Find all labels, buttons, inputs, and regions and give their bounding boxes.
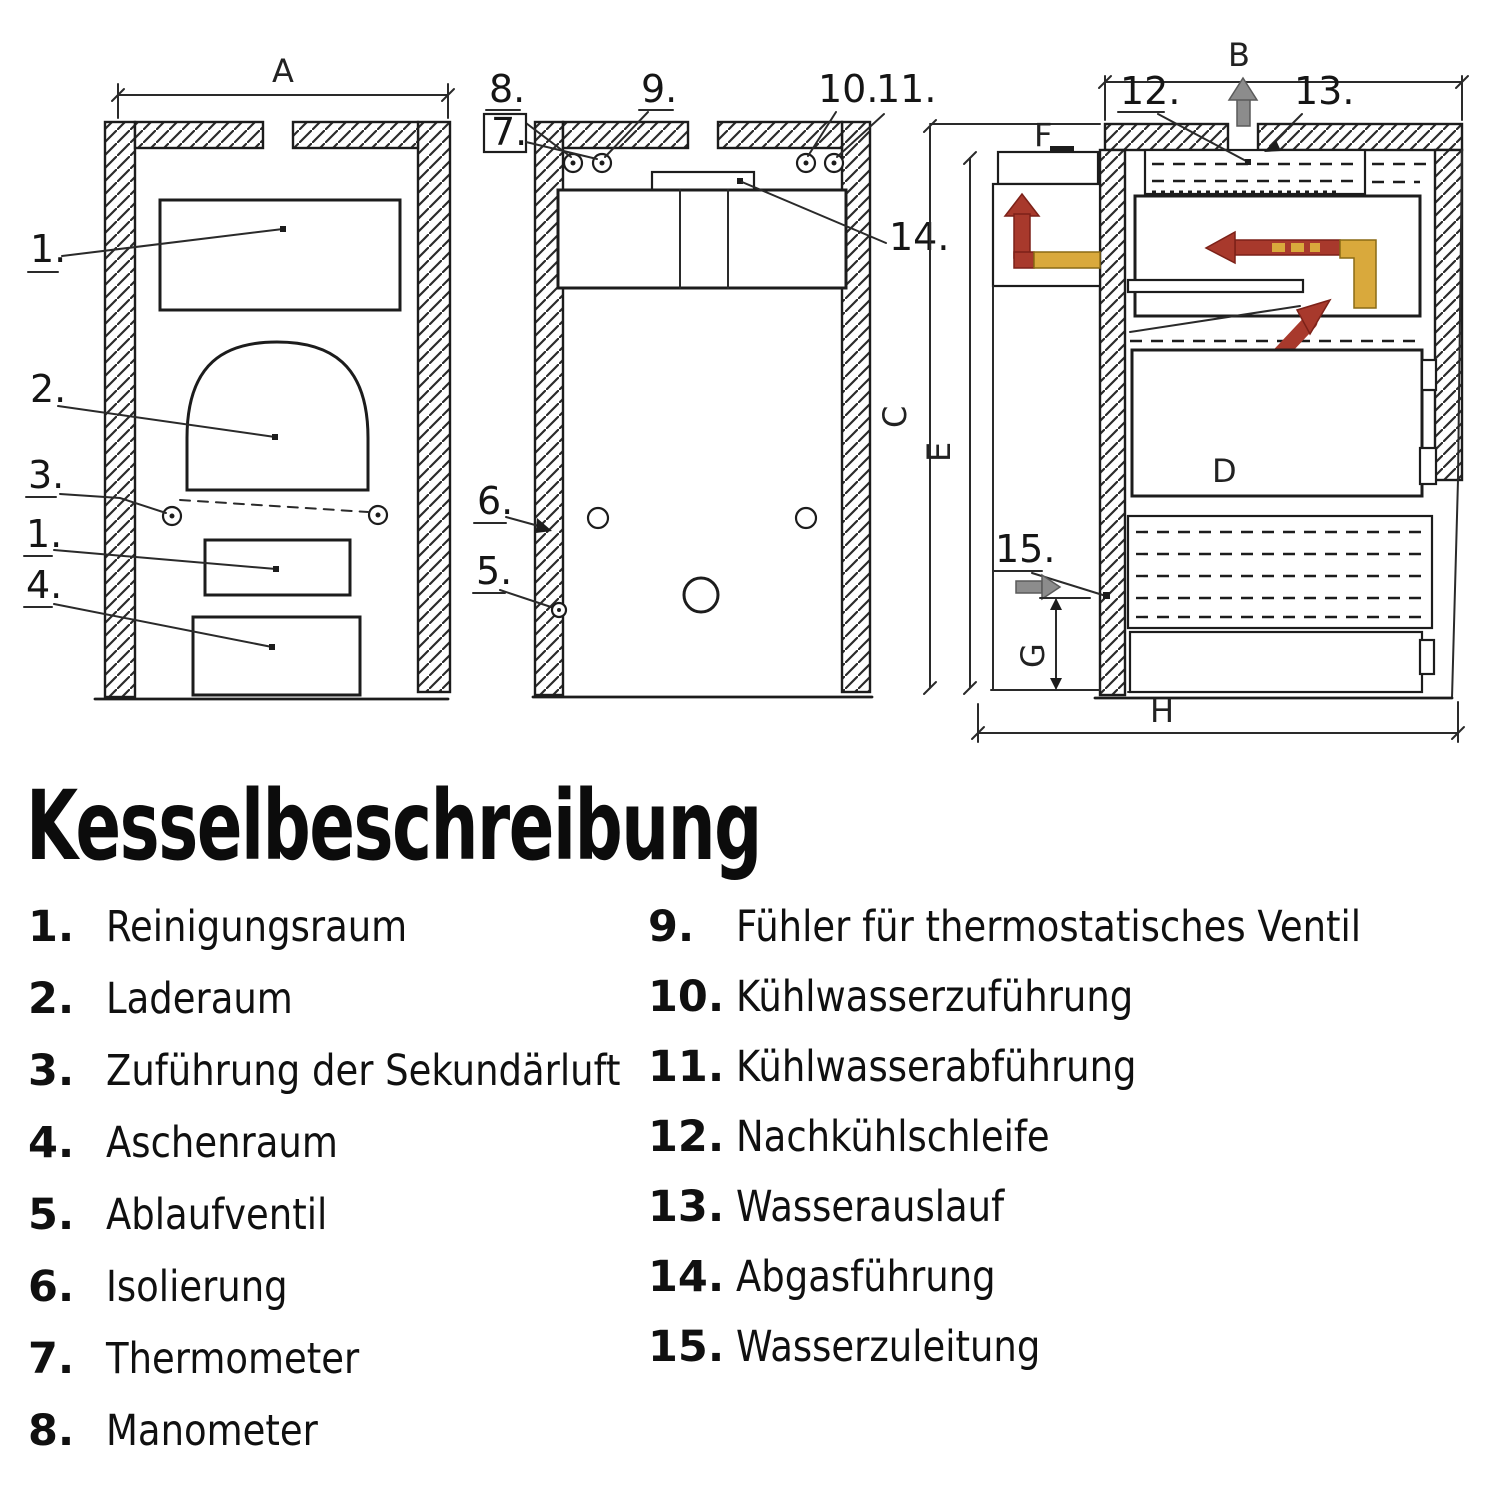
page-title: Kesselbeschreibung <box>26 778 761 874</box>
legend-left-column: 1. Reinigungsraum 2. Laderaum 3. Zuführu… <box>28 903 643 1479</box>
legend-item-number: 5. <box>28 1191 106 1239</box>
legend-item-number: 11. <box>648 1043 736 1091</box>
legend-item-label: Laderaum <box>106 975 293 1023</box>
combustion-chamber: D <box>1132 350 1436 496</box>
legend-item-label: Wasserzuleitung <box>736 1323 1040 1371</box>
water-inlet-callout: 15. <box>993 527 1110 599</box>
dimension-A: A <box>112 52 454 118</box>
callout-11-label: 11. <box>876 67 936 111</box>
callout-3-label: 3. <box>28 453 64 497</box>
legend-item: 12. Nachkühlschleife <box>648 1113 1498 1183</box>
rear-view-diagram: 8. 7. 9. 10. 11. 14. 6. <box>473 67 949 697</box>
boiler-technical-drawing: A 1. <box>0 0 1500 772</box>
legend-item: 10. Kühlwasserzuführung <box>648 973 1498 1043</box>
dimension-b-label: B <box>1228 36 1250 74</box>
legend-item-label: Isolierung <box>106 1263 288 1311</box>
legend-item-label: Manometer <box>106 1407 318 1455</box>
legend-item-number: 6. <box>28 1263 106 1311</box>
legend-item: 11. Kühlwasserabführung <box>648 1043 1498 1113</box>
upper-plenum <box>558 190 846 288</box>
legend-item-label: Zuführung der Sekundärluft <box>106 1047 620 1095</box>
dimension-c-label: C <box>876 406 914 428</box>
cleaning-chamber-opening <box>160 200 400 310</box>
callout-13-label: 13. <box>1294 69 1354 113</box>
legend-item-label: Fühler für thermostatisches Ventil <box>736 903 1361 951</box>
callout-4-label: 4. <box>26 563 62 607</box>
dimension-g-label: G <box>1014 643 1052 668</box>
legend-item-number: 1. <box>28 903 106 951</box>
secondary-air-inlets <box>163 506 387 525</box>
legend-item-label: Thermometer <box>106 1335 359 1383</box>
legend-item: 13. Wasserauslauf <box>648 1183 1498 1253</box>
kesselbeschreibung-page: A 1. <box>0 0 1500 1500</box>
upper-flue-chamber <box>1135 196 1420 316</box>
legend-item-label: Abgasführung <box>736 1253 996 1301</box>
legend-item-label: Reinigungsraum <box>106 903 407 951</box>
heat-exchanger-band <box>1128 516 1432 628</box>
legend-item-label: Ablaufventil <box>106 1191 327 1239</box>
legend-item: 14. Abgasführung <box>648 1253 1498 1323</box>
legend-item-number: 12. <box>648 1113 736 1161</box>
ash-chamber-opening <box>193 617 360 695</box>
legend-item: 1. Reinigungsraum <box>28 903 643 975</box>
callout-7-label: 7. <box>491 110 527 154</box>
dimension-e-label: E <box>920 442 958 462</box>
callout-5-label: 5. <box>476 549 512 593</box>
legend-item-number: 7. <box>28 1335 106 1383</box>
legend-item: 4. Aschenraum <box>28 1119 643 1191</box>
dimension-d-label: D <box>1212 452 1237 490</box>
ash-drawer <box>1130 632 1434 692</box>
legend-item-label: Aschenraum <box>106 1119 338 1167</box>
loading-chamber-arch <box>187 342 368 490</box>
flue-up-arrow-icon <box>1229 78 1257 126</box>
rear-openings <box>588 508 816 612</box>
legend-item-number: 4. <box>28 1119 106 1167</box>
dimension-f-label: F <box>1034 116 1052 154</box>
rear-connection-box: F <box>930 116 1100 690</box>
callout-2-label: 2. <box>30 367 66 411</box>
legend-right-column: 9. Fühler für thermostatisches Ventil 10… <box>648 903 1498 1393</box>
callout-12-label: 12. <box>1120 69 1180 113</box>
legend-item: 6. Isolierung <box>28 1263 643 1335</box>
legend-item-number: 15. <box>648 1323 736 1371</box>
legend-item-label: Kühlwasserzuführung <box>736 973 1133 1021</box>
after-cooling-coil <box>1145 150 1428 194</box>
legend-item: 3. Zuführung der Sekundärluft <box>28 1047 643 1119</box>
legend-item-number: 14. <box>648 1253 736 1301</box>
dimension-H: H <box>972 692 1464 742</box>
legend-item-number: 13. <box>648 1183 736 1231</box>
callout-8-label: 8. <box>489 67 525 111</box>
legend-item: 2. Laderaum <box>28 975 643 1047</box>
dimension-G: G <box>1014 598 1090 690</box>
legend-item-label: Kühlwasserabführung <box>736 1043 1137 1091</box>
legend-item-number: 10. <box>648 973 736 1021</box>
legend-item-label: Nachkühlschleife <box>736 1113 1050 1161</box>
legend-item-number: 3. <box>28 1047 106 1095</box>
dimension-C: C <box>876 120 936 694</box>
legend-item: 15. Wasserzuleitung <box>648 1323 1498 1393</box>
side-section-diagram: B <box>876 36 1468 742</box>
baffle-shelf <box>1128 280 1303 292</box>
legend-item: 7. Thermometer <box>28 1335 643 1407</box>
callout-9-label: 9. <box>641 67 677 111</box>
callout-1-label: 1. <box>30 227 66 271</box>
legend-item: 8. Manometer <box>28 1407 643 1479</box>
legend-item-number: 2. <box>28 975 106 1023</box>
dimension-h-label: H <box>1150 692 1174 730</box>
legend-item: 5. Ablaufventil <box>28 1191 643 1263</box>
legend-item: 9. Fühler für thermostatisches Ventil <box>648 903 1498 973</box>
callout-10-label: 10. <box>818 67 878 111</box>
legend-item-number: 9. <box>648 903 736 951</box>
dimension-a-label: A <box>272 52 294 90</box>
callout-15-label: 15. <box>995 527 1055 571</box>
callout-6-label: 6. <box>477 479 513 523</box>
callout-14-label: 14. <box>889 215 949 259</box>
legend-item-number: 8. <box>28 1407 106 1455</box>
front-view-diagram: A 1. <box>24 52 454 699</box>
water-inlet-arrow-icon <box>1016 575 1060 599</box>
legend-item-label: Wasserauslauf <box>736 1183 1004 1231</box>
